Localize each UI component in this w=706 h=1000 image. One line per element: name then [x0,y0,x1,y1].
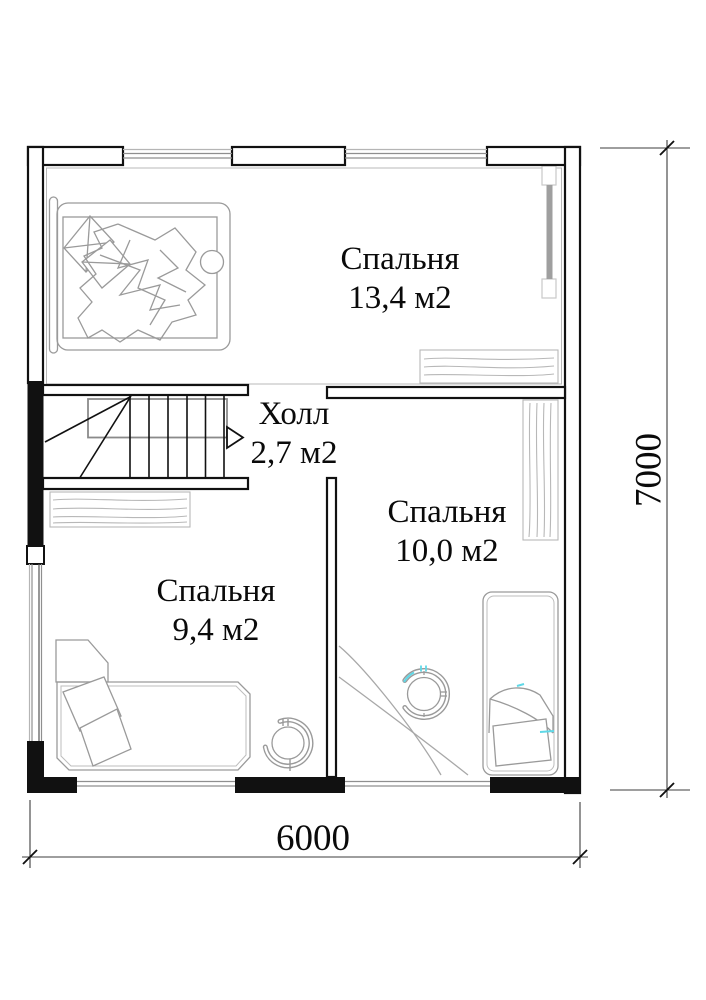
window-bottom-left [77,782,235,787]
room-label-bedroom-top: Спальня 13,4 м2 [341,240,460,318]
room-label-bedroom-right: Спальня 10,0 м2 [388,493,507,571]
floor-plan-drawing [0,0,706,1000]
window-top-left [123,150,232,159]
window-bottom-right [345,782,490,787]
room-name: Спальня [157,572,276,611]
single-bed-left [56,640,250,770]
window-top-right [345,150,487,159]
floor-plan: Спальня 13,4 м2 Холл 2,7 м2 Спальня 10,0… [0,0,706,1000]
room-area: 9,4 м2 [157,611,276,650]
room-name: Спальня [341,240,460,279]
room-area: 2,7 м2 [251,434,338,473]
window-left [30,564,42,741]
room-label-bedroom-left: Спальня 9,4 м2 [157,572,276,650]
room-name: Холл [251,395,338,434]
dresser [420,350,558,383]
room-label-hall: Холл 2,7 м2 [251,395,338,473]
dimension-height-label: 7000 [628,433,671,507]
room-area: 13,4 м2 [341,279,460,318]
room-area: 10,0 м2 [388,532,507,571]
shelf [50,492,190,527]
round-chair-left [265,719,311,771]
staircase [45,396,243,478]
corner-desk [339,646,468,775]
dimension-width-label: 6000 [276,817,350,860]
office-chair [404,666,448,718]
stair-direction-arrow [227,427,243,448]
wardrobe [523,400,558,540]
radiator [542,166,556,298]
room-name: Спальня [388,493,507,532]
single-bed-right [483,592,558,775]
double-bed [50,197,231,353]
